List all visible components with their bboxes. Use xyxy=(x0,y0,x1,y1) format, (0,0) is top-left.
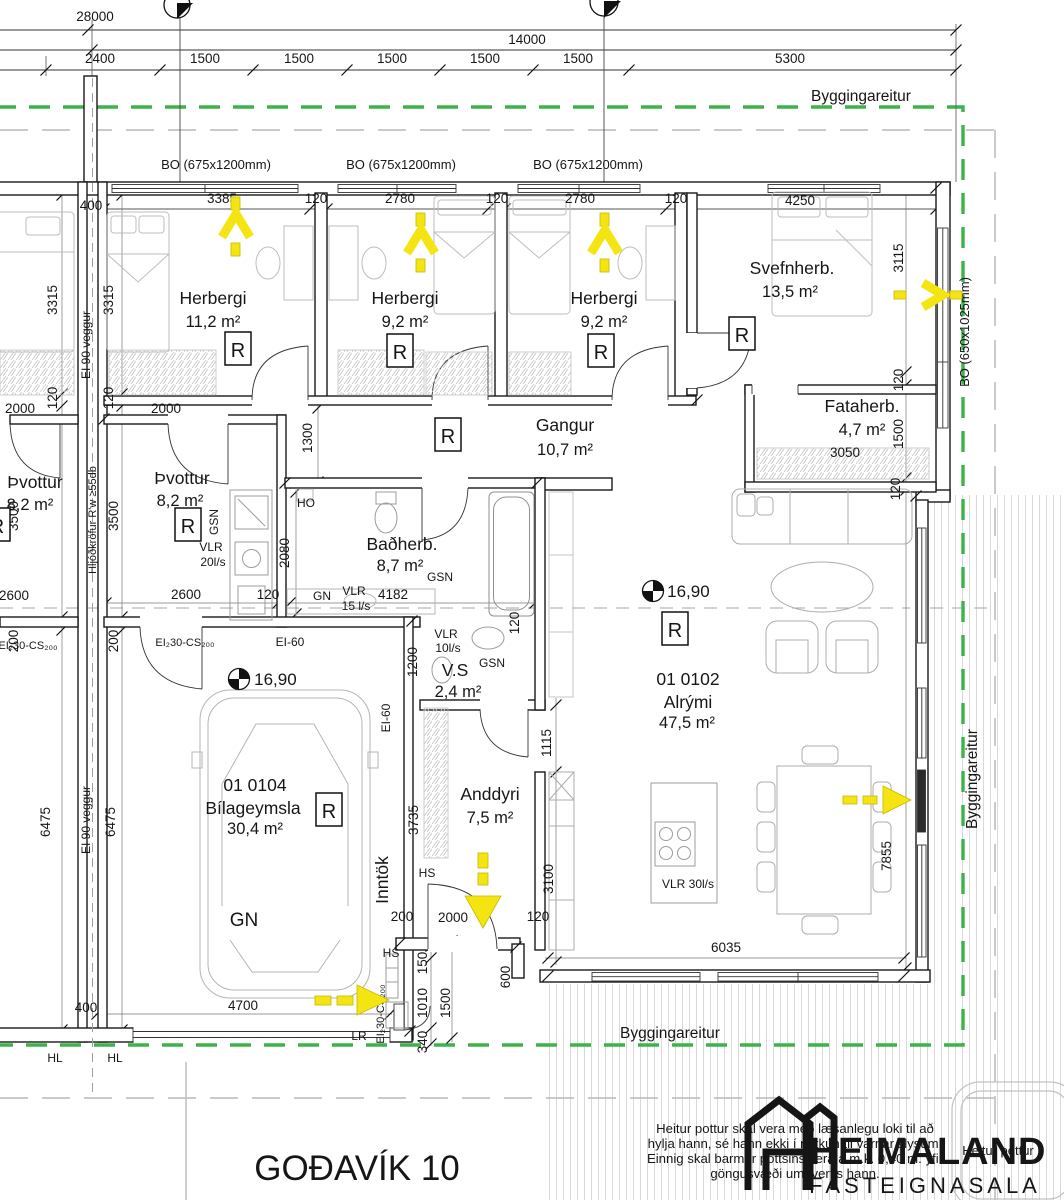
dim-14000: 14000 xyxy=(508,32,546,47)
dim-340: 340 xyxy=(415,1031,430,1054)
window-label-bo675-2: BO (675x1200mm) xyxy=(346,157,456,172)
dim-400-bottom: 400 xyxy=(75,1000,98,1015)
window-s1 xyxy=(592,973,700,982)
r-text: R xyxy=(231,340,245,362)
wall-left-unit-2 xyxy=(0,617,78,627)
r-text: R xyxy=(668,620,682,642)
wall-bed-div2 xyxy=(495,193,507,403)
escape-arrow-alrymi xyxy=(843,786,911,814)
dim-150: 150 xyxy=(415,952,430,975)
bed-herbergi2 xyxy=(434,196,495,314)
bed-herbergi3 xyxy=(509,196,570,314)
label-vlr15: 15 l/s xyxy=(342,599,371,613)
wall-svefn-west2 xyxy=(687,388,697,395)
r-text: R xyxy=(594,342,608,364)
dim-4250: 4250 xyxy=(785,193,815,208)
label-hs-1: HS xyxy=(419,866,436,880)
r-badge-svefnherb: R xyxy=(729,317,755,350)
desk-herbergi1 xyxy=(256,226,313,300)
dim-1500-d: 1500 xyxy=(470,51,500,66)
room-herbergi3-name: Herbergi xyxy=(570,288,637,308)
escape-arrow-herbergi3 xyxy=(591,213,619,272)
window-label-bo675-1: BO (675x1200mm) xyxy=(161,157,271,172)
wall-label-ei60-1: EI-60 xyxy=(276,635,305,649)
wall-label-ei230cs-mirror: EI₂30-CS₂₀₀ xyxy=(0,640,58,652)
dim-120-bath: 120 xyxy=(257,587,280,602)
room-gangur-area: 10,7 m² xyxy=(537,441,593,459)
door-left-unit xyxy=(10,424,60,478)
dim-5300: 5300 xyxy=(775,51,805,66)
dim-200-entry: 200 xyxy=(391,909,414,924)
label-gsn-thvottur: GSN xyxy=(207,509,221,535)
escape-arrow-svefnherb xyxy=(894,283,962,307)
wall-bath-east xyxy=(535,478,545,710)
room-svefnherb-name: Svefnherb. xyxy=(750,258,835,278)
r-badge-herbergi2: R xyxy=(387,334,413,367)
label-vlr30: VLR 30l/s xyxy=(662,877,714,891)
label-lr: LR xyxy=(351,1029,367,1043)
deck-east xyxy=(930,495,1064,987)
window-label-bo675-3: BO (675x1200mm) xyxy=(533,157,643,172)
dim-120-e3: 120 xyxy=(888,478,903,501)
room-herbergi1-area: 11,2 m² xyxy=(186,313,241,331)
label-hl-2: HL xyxy=(107,1051,123,1065)
dim-6475-r: 6475 xyxy=(103,807,118,837)
dim-6475-l: 6475 xyxy=(38,807,53,837)
label-gsn-vs: GSN xyxy=(479,656,505,670)
room-anddyri-area: 7,5 m² xyxy=(467,809,514,827)
dim-1010: 1010 xyxy=(415,988,430,1018)
r-text: R xyxy=(0,516,4,538)
room-alrymi-area: 47,5 m² xyxy=(659,714,715,732)
bathtub xyxy=(489,492,534,616)
room-bilageymsla-unit: 01 0104 xyxy=(223,775,287,795)
door-badherb xyxy=(422,477,468,540)
label-inntok: Inntök xyxy=(372,856,392,904)
dim-3500-r: 3500 xyxy=(106,501,121,531)
wall-label-ei60-2: EI-60 xyxy=(379,703,393,732)
room-vs-area: 2,4 m² xyxy=(435,683,482,701)
deck-hatch-areas xyxy=(545,495,1064,1200)
dim-120-r: 120 xyxy=(101,387,116,410)
room-herbergi3-area: 9,2 m² xyxy=(581,313,628,331)
dim-2080: 2080 xyxy=(277,538,292,568)
label-vlr-bath: VLR xyxy=(342,584,366,598)
room-gangur-name: Gangur xyxy=(536,415,595,435)
r-badge-thvottur: R xyxy=(175,508,201,541)
escape-arrow-herbergi2 xyxy=(407,213,435,272)
r-text: R xyxy=(393,342,407,364)
r-badge-herbergi1: R xyxy=(225,332,251,365)
dim-1115: 1115 xyxy=(539,729,554,757)
dim-2780-a: 2780 xyxy=(385,191,415,206)
dim-2780-b: 2780 xyxy=(565,191,595,206)
dim-4182: 4182 xyxy=(378,587,408,602)
dim-1500-e: 1500 xyxy=(563,51,593,66)
window-e1 xyxy=(938,228,949,428)
party-wall-pilaster xyxy=(84,76,97,182)
room-anddyri-name: Anddyri xyxy=(460,784,519,804)
bath-closet xyxy=(549,492,573,697)
armchairs xyxy=(766,621,878,673)
dim-400-top: 400 xyxy=(80,198,103,213)
room-herbergi1-name: Herbergi xyxy=(179,288,246,308)
window-e4 xyxy=(918,845,927,957)
wall-label-ei90-1: EI 90 veggur xyxy=(79,311,93,379)
wall-gangur-north xyxy=(104,396,696,405)
boundary-label-top: Byggingareitur xyxy=(811,88,911,105)
page-title: GOÐAVÍK 10 xyxy=(254,1149,460,1188)
r-text: R xyxy=(441,426,455,448)
room-svefnherb-area: 13,5 m² xyxy=(762,283,818,301)
room-alrymi-unit: 01 0102 xyxy=(656,669,719,689)
wall-gangur-south-east xyxy=(537,478,612,490)
room-herbergi2-name: Herbergi xyxy=(371,288,438,308)
window-e2 xyxy=(918,528,927,643)
dim-2000-thvottur: 2000 xyxy=(151,401,181,416)
dim-3100: 3100 xyxy=(541,864,556,894)
door-herbergi3 xyxy=(612,346,668,406)
window-n1 xyxy=(112,185,298,193)
dining-set xyxy=(757,746,891,934)
room-bilageymsla-name: Bílageymsla xyxy=(205,798,301,818)
r-text: R xyxy=(322,801,336,823)
dim-120-entry: 120 xyxy=(527,909,550,924)
label-hl-1: HL xyxy=(47,1051,63,1065)
dim-120-c: 120 xyxy=(665,191,688,206)
level-symbol-alrymi xyxy=(643,581,664,602)
dim-2000-entry: 2000 xyxy=(438,910,468,925)
wall-label-ei90-2: EI 90 veggur xyxy=(79,786,93,854)
label-ho: HO xyxy=(297,496,315,510)
dim-2400: 2400 xyxy=(85,51,115,66)
wardrobes xyxy=(0,350,929,858)
wall-label-sound: Hljóðkröfur R'w ≥55db xyxy=(87,466,99,574)
wall-bed-div1 xyxy=(315,193,327,403)
boundary-label-right: Byggingareitur xyxy=(964,729,981,829)
dim-1300: 1300 xyxy=(300,423,315,453)
label-vlr20: 20l/s xyxy=(200,555,225,569)
door-garage-inner xyxy=(140,616,202,689)
room-badherb-area: 8,7 m² xyxy=(377,557,424,575)
label-gsn-bath: GSN xyxy=(427,570,453,584)
dim-600: 600 xyxy=(498,966,513,989)
dim-1500-a: 1500 xyxy=(190,51,220,66)
window-n4 xyxy=(768,185,880,193)
r-text: R xyxy=(181,516,195,538)
toilet-bath xyxy=(375,492,397,533)
window-s2 xyxy=(718,973,878,982)
dim-28000: 28000 xyxy=(76,9,114,24)
dim-1500-e2: 1500 xyxy=(891,419,906,449)
label-vlr-thvottur: VLR xyxy=(199,540,223,554)
r-badge-thvottur-mirror: R xyxy=(0,508,10,541)
logo-name: HEIMALAND xyxy=(810,1131,1047,1173)
room-thvottur-name: Þvottur xyxy=(154,468,210,488)
room-fataherb-name: Fataherb. xyxy=(825,396,900,416)
coffee-table xyxy=(771,562,873,612)
wall-left-unit-1 xyxy=(10,415,78,424)
r-badge-herbergi3: R xyxy=(588,334,614,367)
wall-fataherb-south xyxy=(745,482,936,492)
r-badge-gangur: R xyxy=(435,418,461,451)
dim-4700: 4700 xyxy=(228,998,258,1013)
patio-door-leaf xyxy=(918,770,926,832)
car xyxy=(192,690,378,998)
door-vs xyxy=(480,699,528,757)
dim-120-a: 120 xyxy=(305,191,328,206)
bed-left-unit xyxy=(0,212,74,352)
sofa xyxy=(732,489,912,544)
dim-120-l: 120 xyxy=(45,387,60,410)
label-vlr-vs: VLR xyxy=(434,627,458,641)
room-thvottur-mirror-area: 8,2 m² xyxy=(7,496,54,514)
dim-6035: 6035 xyxy=(711,940,741,955)
wall-svefn-west xyxy=(687,193,697,333)
kitchen-cabinets xyxy=(549,772,574,950)
level-symbol-garage xyxy=(229,669,250,690)
wall-bath-north xyxy=(285,478,545,488)
dimension-lines xyxy=(0,15,956,1046)
dim-3735: 3735 xyxy=(406,805,421,835)
dim-120-tub: 120 xyxy=(507,612,522,635)
label-gn-garage: GN xyxy=(230,910,259,931)
dim-3315-r: 3315 xyxy=(101,285,116,315)
room-vs-name: V.S xyxy=(442,660,469,680)
section-markers xyxy=(164,0,621,19)
r-text: R xyxy=(735,325,749,347)
label-hs-2: HS xyxy=(383,946,400,960)
room-bilageymsla-area: 30,4 m² xyxy=(227,820,283,838)
bed-herbergi1 xyxy=(107,212,169,352)
dim-3315-l: 3315 xyxy=(45,285,60,315)
opening-fataherb xyxy=(752,384,798,395)
room-alrymi-name: Alrými xyxy=(664,692,713,712)
dim-3115: 3115 xyxy=(891,243,906,272)
dim-2600: 2600 xyxy=(171,587,201,602)
window-e3 xyxy=(918,688,927,758)
wall-label-ei230cs-1: EI₂30-CS₂₀₀ xyxy=(155,637,214,649)
room-herbergi2-area: 9,2 m² xyxy=(382,313,429,331)
dim-2600-mirror: 2600 xyxy=(0,588,29,603)
dim-1500-c: 1500 xyxy=(377,51,407,66)
wall-label-ei230cs-2: EI₂30-CS₂₀₀ xyxy=(375,984,387,1043)
dim-120-b: 120 xyxy=(486,191,509,206)
logo-tagline: FASTEIGNASALA xyxy=(809,1173,1041,1198)
r-badge-alrymi: R xyxy=(662,612,688,645)
dim-1500-entry: 1500 xyxy=(438,988,453,1018)
label-vlr10: 10l/s xyxy=(435,641,460,655)
floor-plan-drawing: 28000 14000 2400 1500 1500 1500 1500 150… xyxy=(0,0,1064,1200)
room-fataherb-area: 4,7 m² xyxy=(839,421,886,439)
dim-1200: 1200 xyxy=(405,647,420,677)
room-badherb-name: Baðherb. xyxy=(366,534,437,554)
dim-3050: 3050 xyxy=(830,445,860,460)
wall-fataherb-west xyxy=(745,385,754,492)
furniture xyxy=(0,192,912,1028)
dim-200-r: 200 xyxy=(106,630,121,653)
boundary-label-bottom: Byggingareitur xyxy=(620,1025,720,1042)
dim-120-e1: 120 xyxy=(891,369,906,392)
label-gn-bath: GN xyxy=(313,589,331,603)
door-herbergi1 xyxy=(252,346,308,406)
dim-2000-left: 2000 xyxy=(5,401,35,416)
wall-bed-div3 xyxy=(675,193,687,403)
dim-1500-b: 1500 xyxy=(284,51,314,66)
escape-arrow-entrance xyxy=(465,853,501,928)
dim-7855: 7855 xyxy=(879,841,894,871)
r-badge-bilageymsla: R xyxy=(316,793,342,826)
room-thvottur-mirror-name: Þvottur xyxy=(7,472,63,492)
floor-plan-svg: 28000 14000 2400 1500 1500 1500 1500 150… xyxy=(0,0,1064,1200)
